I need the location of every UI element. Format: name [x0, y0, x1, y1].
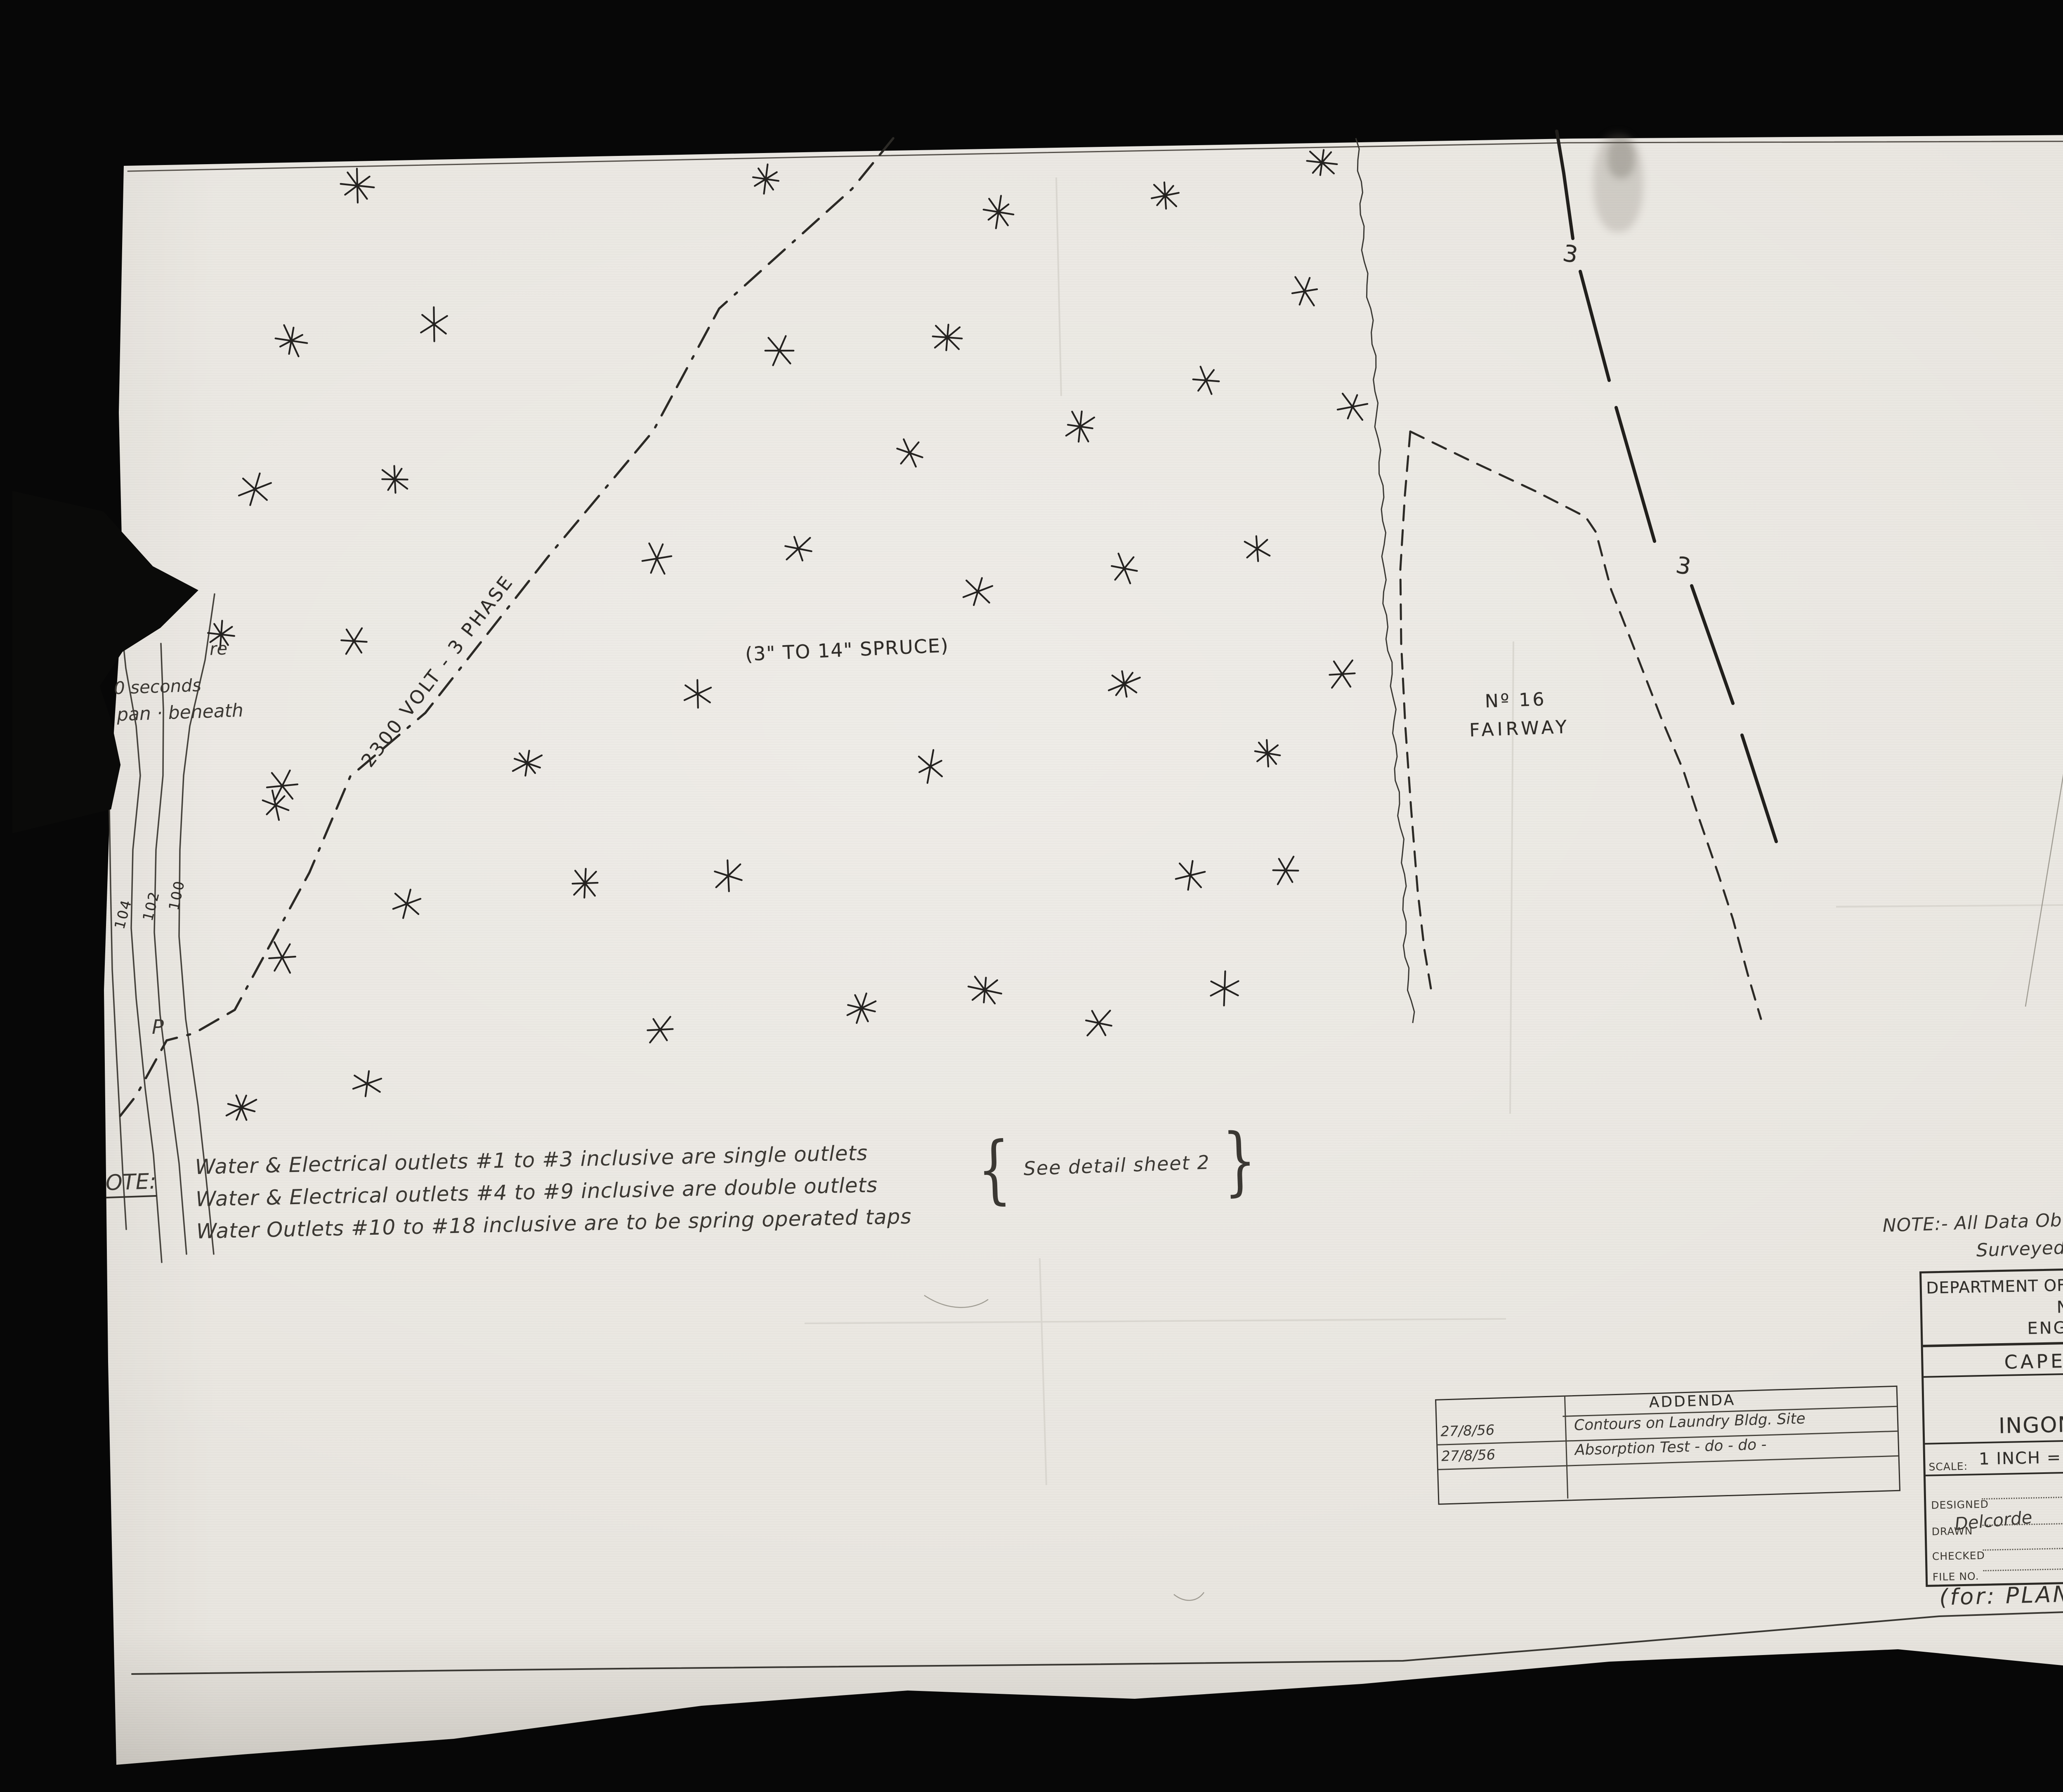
- tree-symbol: [1109, 671, 1140, 697]
- addenda-row2-date: 27/8/56: [1441, 1447, 1496, 1465]
- tree-symbol: [393, 889, 420, 918]
- tb-checked-rule: [1983, 1548, 2063, 1551]
- map-linework: [0, 0, 2063, 1792]
- edge-note-1: re: [209, 638, 228, 659]
- tree-symbol: [227, 1095, 256, 1120]
- tree-symbol: [421, 307, 447, 342]
- tree-symbol: [715, 860, 741, 891]
- tree-symbol: [1176, 861, 1205, 890]
- tree-symbol: [753, 164, 779, 193]
- tb-file-rule: [1983, 1568, 2063, 1571]
- tree-symbol: [513, 751, 542, 776]
- fairway-label: Nº 16 FAIRWAY: [1468, 688, 1570, 741]
- tree-symbol: [239, 474, 271, 505]
- tb-designed-rule: [1982, 1497, 2063, 1500]
- tree-symbol: [353, 1071, 381, 1096]
- tree-symbol: [685, 680, 711, 707]
- tree-symbol: [785, 537, 812, 561]
- edge-note-3: pan · beneath: [116, 700, 243, 726]
- addenda-row1-text: Contours on Laundry Bldg. Site: [1574, 1410, 1806, 1434]
- tree-symbol: [1292, 277, 1317, 305]
- tree-symbol: [1211, 971, 1238, 1005]
- tree-symbol: [1112, 554, 1137, 583]
- note-left-line2: Water & Electrical outlets #4 to #9 incl…: [196, 1172, 911, 1211]
- tree-symbol: [647, 1017, 673, 1043]
- fairway-word: FAIRWAY: [1469, 717, 1570, 741]
- tree-symbol: [1245, 536, 1270, 561]
- tree-symbol: [933, 325, 962, 350]
- tb-checked-label: CHECKED: [1932, 1549, 1985, 1563]
- edge-note-2: 0 seconds: [113, 675, 201, 698]
- tb-drawn-signature: Delcorde: [1954, 1507, 2033, 1534]
- tree-symbol: [382, 466, 407, 493]
- tb-scale-label: SCALE:: [1928, 1460, 1968, 1473]
- tree-symbol: [1086, 1011, 1112, 1035]
- addenda-rule: [1438, 1455, 1898, 1470]
- tree-symbol: [897, 439, 922, 467]
- tree-symbol: [968, 976, 1001, 1003]
- tb-department: DEPARTMENT OF NORTHERN AFFAIRS & NATIONA…: [1921, 1269, 2063, 1298]
- tree-symbol: [642, 543, 671, 574]
- tb-designed-label: DESIGNED: [1931, 1498, 1989, 1511]
- addenda-row1-date: 27/8/56: [1440, 1422, 1495, 1440]
- fairway-number: Nº 16: [1485, 688, 1569, 712]
- note-left-label: OTE:: [105, 1169, 157, 1198]
- tree-symbol: [573, 869, 598, 898]
- tree-symbol: [1193, 367, 1219, 394]
- note-brace-group: { See detail sheet 2 }: [969, 1117, 1265, 1214]
- tree-symbol: [341, 169, 374, 203]
- addenda-table: ADDENDA 27/8/56 Contours on Laundry Bldg…: [1435, 1386, 1900, 1505]
- tree-symbol: [276, 325, 307, 356]
- tree-symbol: [984, 196, 1014, 229]
- scanned-drawing: 2300 VOLT - 3 PHASE (3" TO 14" SPRUCE) N…: [0, 0, 2063, 1792]
- note-brace-text: See detail sheet 2: [1017, 1151, 1216, 1180]
- tree-symbol: [1255, 740, 1280, 767]
- tree-symbol: [267, 771, 297, 802]
- tb-scale-value: 1 INCH = 50 FT.: [1979, 1447, 2063, 1469]
- tree-symbol: [847, 993, 876, 1023]
- tree-symbol: [1307, 150, 1337, 175]
- tree-symbol: [263, 790, 289, 820]
- tb-title1: DEVELOPMENT AREA: [1924, 1379, 2063, 1412]
- brace-close-icon: }: [1221, 1117, 1257, 1205]
- tree-symbol: [341, 628, 366, 654]
- tree-symbol: [1066, 411, 1094, 442]
- tree-symbol: [765, 336, 794, 365]
- note-left-block: Water & Electrical outlets #1 to #3 incl…: [195, 1140, 912, 1243]
- tree-symbol: [269, 942, 295, 973]
- title-block: DEPARTMENT OF NORTHERN AFFAIRS & NATIONA…: [1919, 1261, 2063, 1587]
- tree-symbol: [1152, 182, 1179, 209]
- tb-file-label: FILE NO.: [1933, 1570, 1979, 1583]
- tree-symbol: [1273, 856, 1298, 884]
- pole-label: P: [152, 1016, 164, 1039]
- tree-symbol: [919, 750, 942, 783]
- tree-symbol: [963, 578, 992, 605]
- tree-symbol: [1329, 660, 1355, 688]
- tree-symbol: [1338, 394, 1367, 420]
- brace-open-icon: {: [976, 1126, 1012, 1213]
